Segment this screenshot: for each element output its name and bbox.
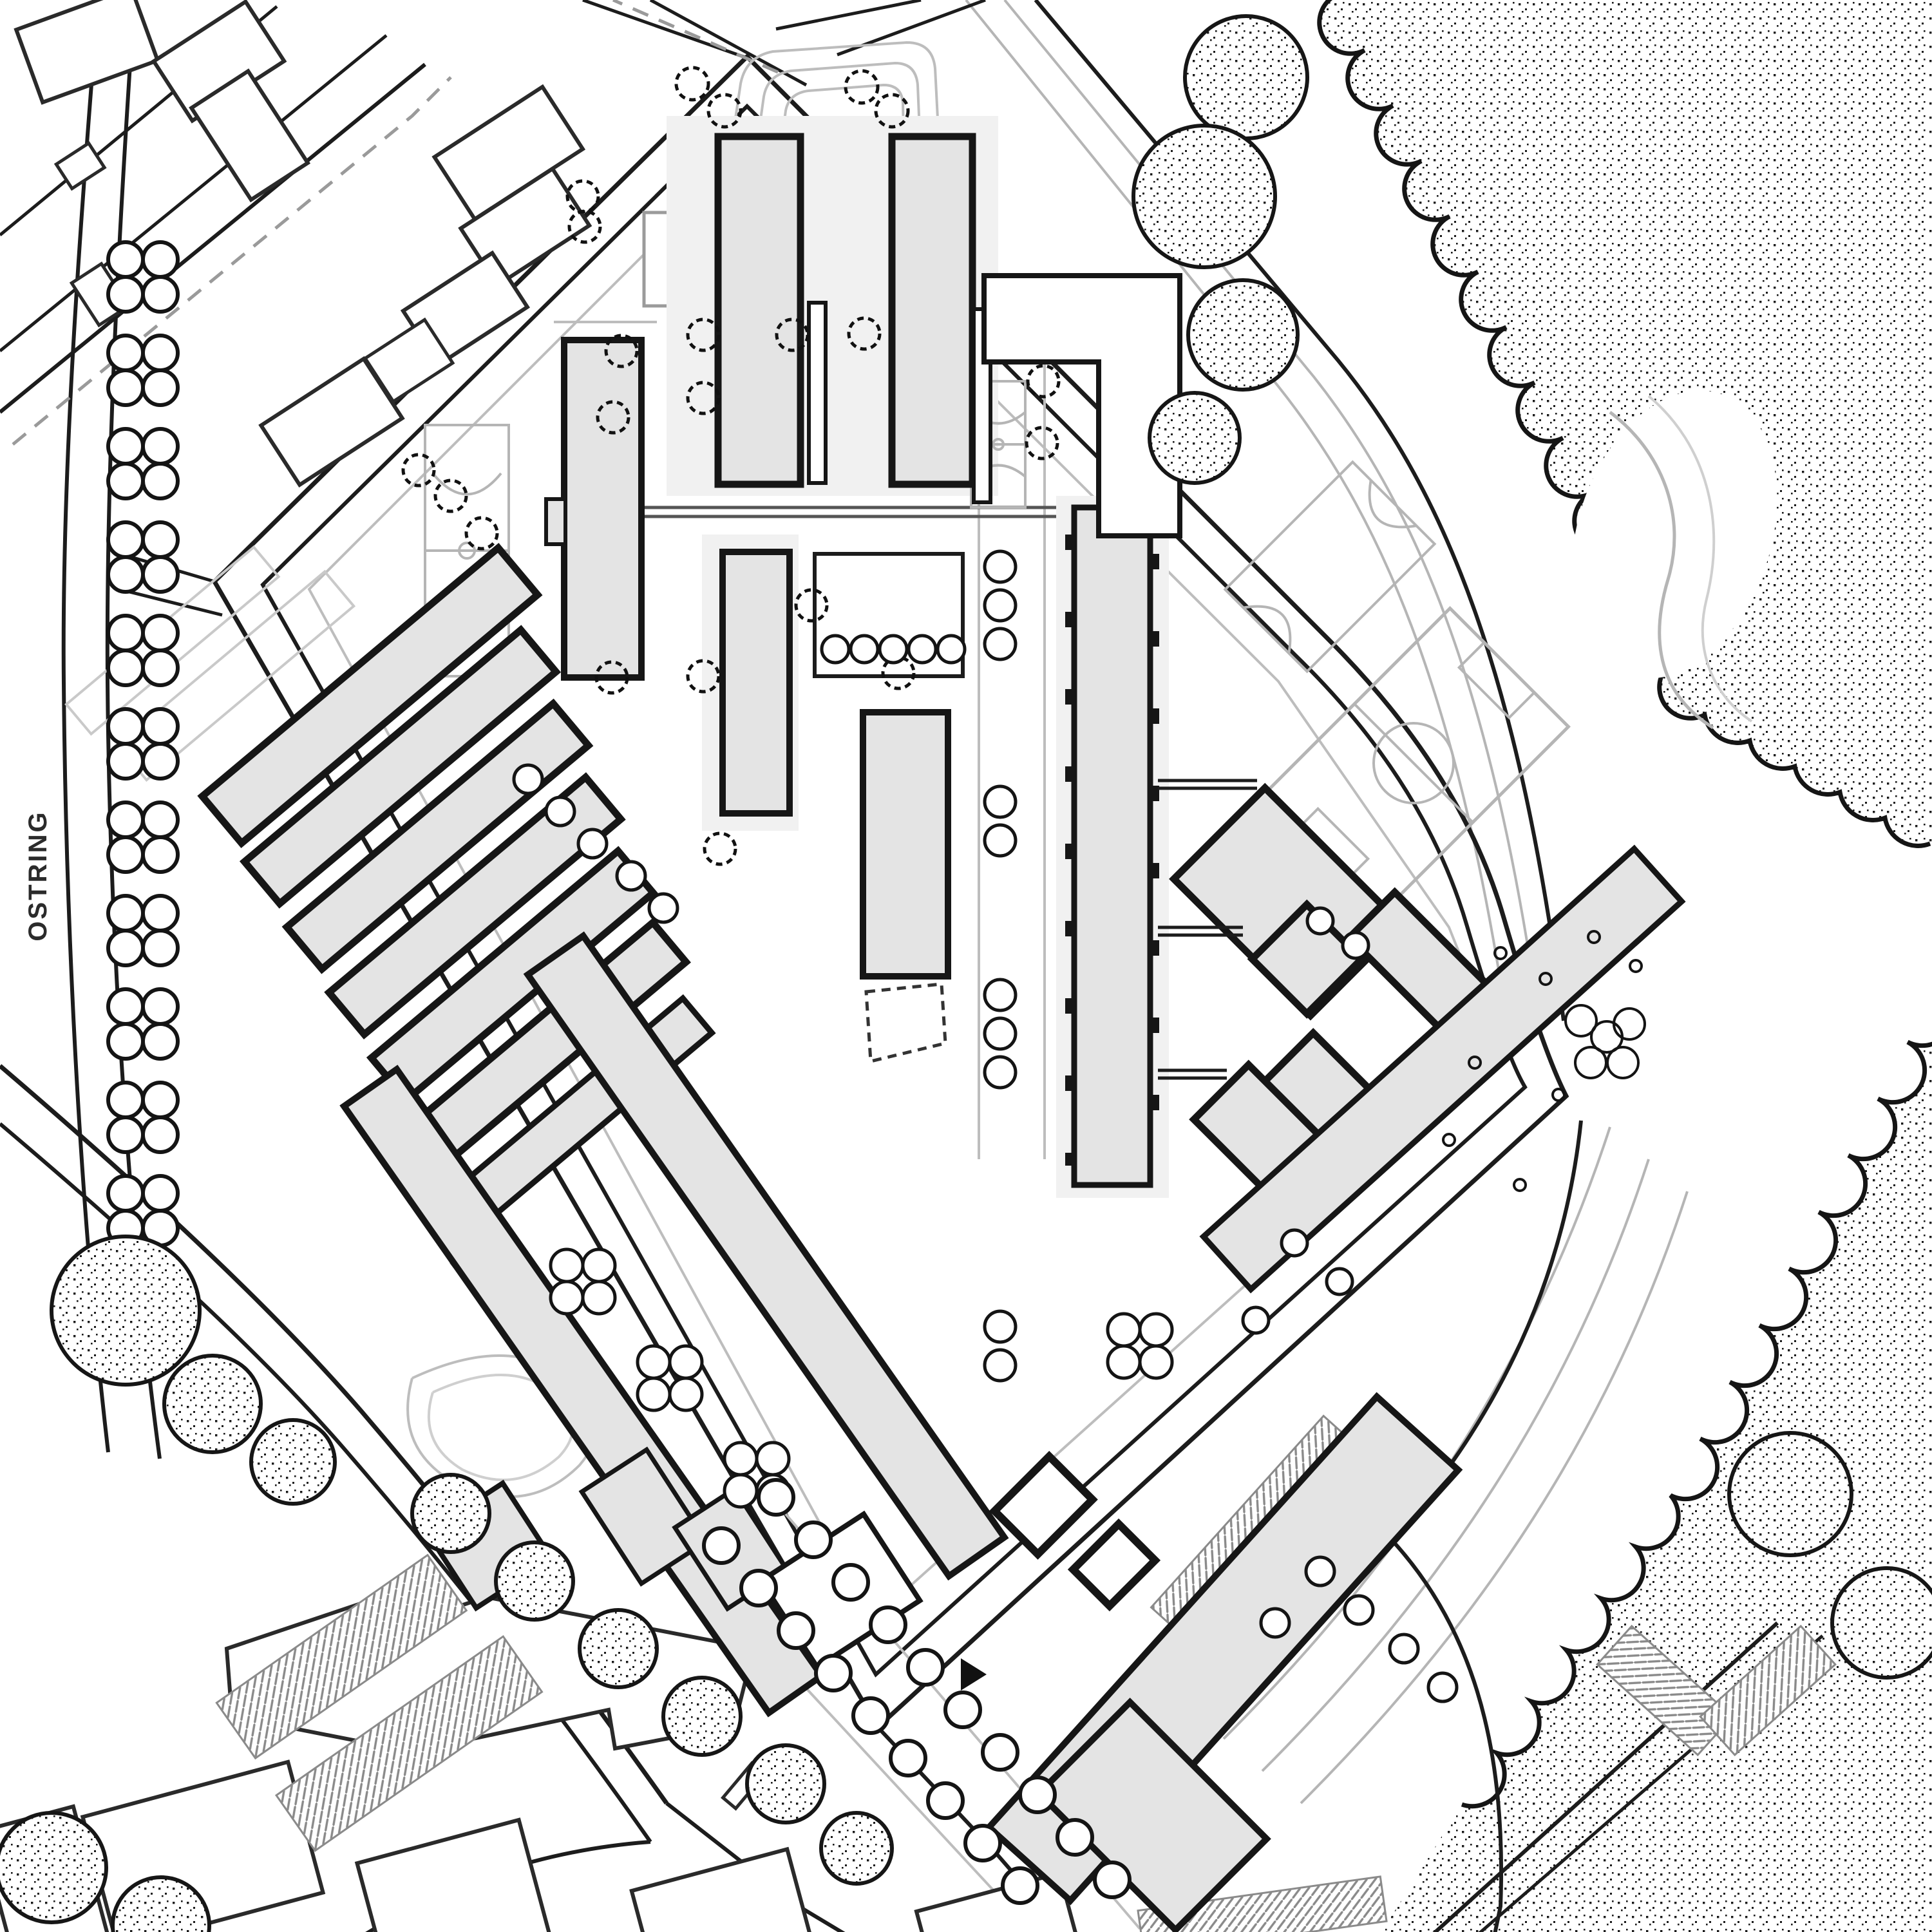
central-slab-2: [863, 712, 948, 976]
north-slab-1: [718, 137, 800, 484]
east-long-slab: [1074, 507, 1150, 1185]
north-slab-2: [892, 137, 972, 484]
site-plan-canvas: OSTRING: [0, 0, 1932, 1932]
courtyard-tree-row: [822, 636, 965, 663]
site-plan-map: OSTRING: [0, 0, 1932, 1932]
west-slab: [564, 340, 641, 677]
central-slab-1: [723, 552, 790, 813]
street-name-label: OSTRING: [24, 810, 52, 941]
